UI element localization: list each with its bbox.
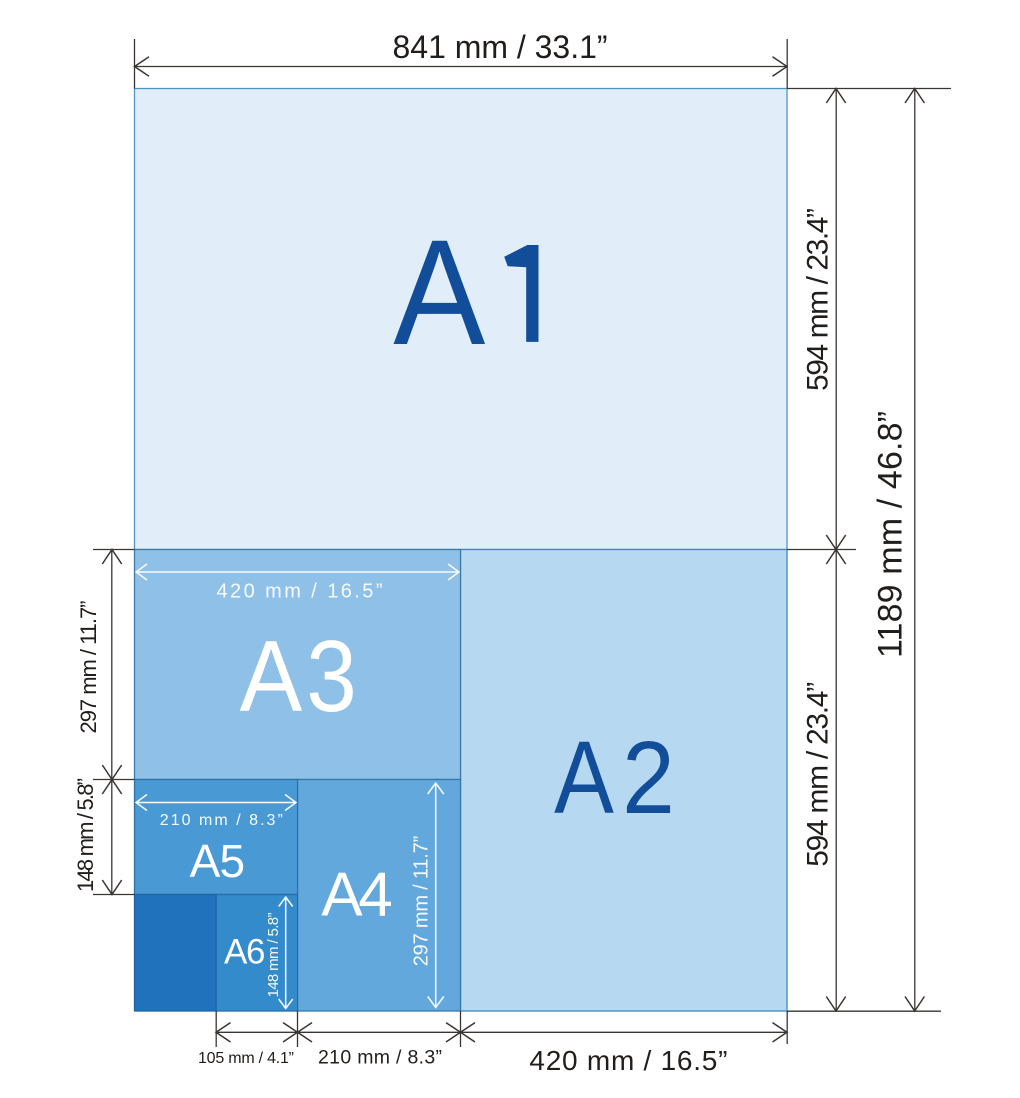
svg-text:3: 3 [306, 621, 357, 733]
svg-text:A: A [240, 620, 303, 733]
svg-text:148 mm / 5.8”: 148 mm / 5.8” [265, 913, 282, 998]
svg-text:420 mm / 16.5”: 420 mm / 16.5” [529, 1045, 727, 1076]
svg-text:210 mm / 8.3”: 210 mm / 8.3” [318, 1047, 442, 1069]
svg-text:297 mm / 11.7”: 297 mm / 11.7” [411, 836, 433, 967]
svg-text:1189 mm / 46.8”: 1189 mm / 46.8” [872, 411, 910, 658]
svg-text:A4: A4 [321, 861, 393, 930]
svg-text:2: 2 [622, 719, 675, 835]
svg-text:210 mm / 8.3”: 210 mm / 8.3” [160, 812, 283, 829]
svg-text:A5: A5 [190, 835, 246, 887]
svg-text:594 mm / 23.4”: 594 mm / 23.4” [802, 682, 835, 867]
svg-text:297 mm / 11.7”: 297 mm / 11.7” [76, 601, 101, 734]
svg-text:A6: A6 [224, 933, 266, 972]
svg-text:105 mm / 4.1”: 105 mm / 4.1” [198, 1050, 294, 1067]
svg-text:594 mm / 23.4”: 594 mm / 23.4” [802, 208, 835, 391]
svg-text:A: A [554, 721, 614, 835]
svg-text:148 mm / 5.8”: 148 mm / 5.8” [73, 778, 98, 892]
svg-text:A: A [393, 209, 485, 377]
svg-text:841 mm / 33.1”: 841 mm / 33.1” [393, 29, 608, 65]
